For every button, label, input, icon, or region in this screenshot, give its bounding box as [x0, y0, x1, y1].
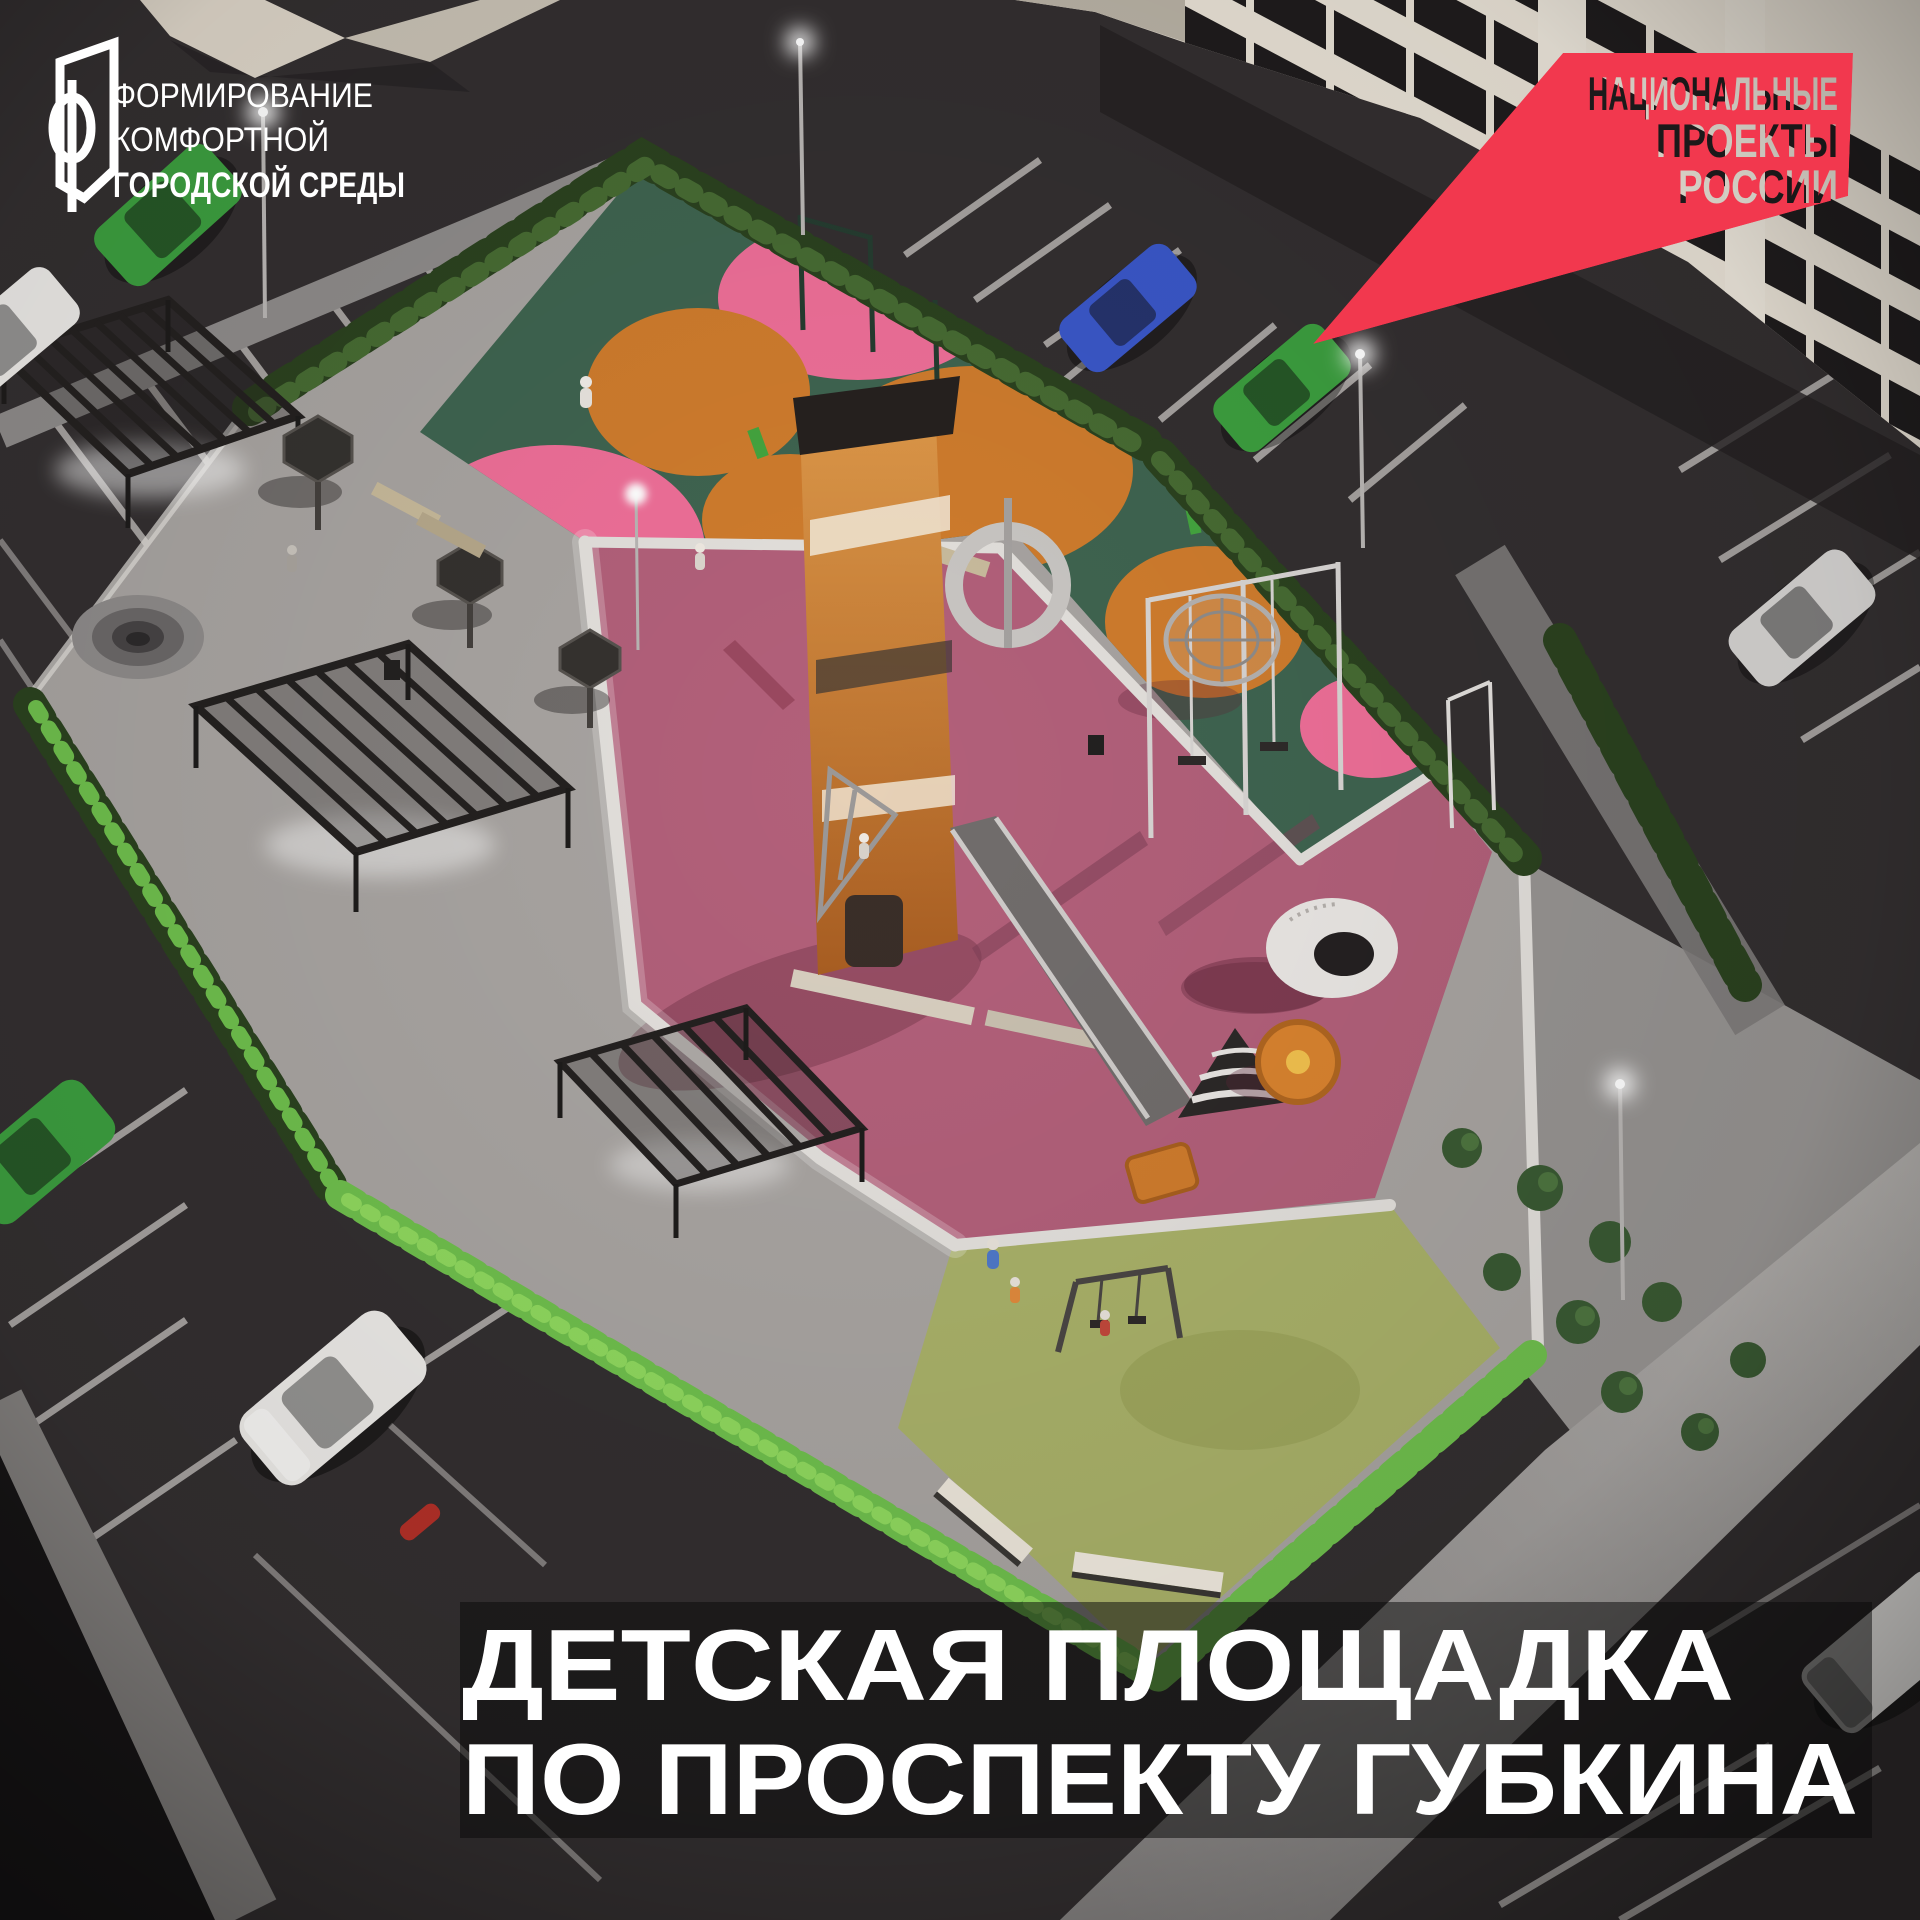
playground-render: НАЦИОНАЛЬНЫЕ ПРОЕКТЫ РОССИИ	[0, 0, 1920, 1920]
title-line2: ПО ПРОСПЕКТУ ГУБКИНА	[462, 1724, 1858, 1836]
poster: НАЦИОНАЛЬНЫЕ ПРОЕКТЫ РОССИИ	[0, 0, 1920, 1920]
title-banner: ДЕТСКАЯ ПЛОЩАДКА ПО ПРОСПЕКТУ ГУБКИНА	[460, 1602, 1872, 1838]
fkgs-logo-line1: ФОРМИРОВАНИЕ	[113, 77, 373, 115]
fkgs-logo-line3: ГОРОДСКОЙ СРЕДЫ	[113, 165, 405, 205]
title-line1: ДЕТСКАЯ ПЛОЩАДКА	[462, 1610, 1734, 1722]
fkgs-logo-line2: КОМФОРТНОЙ	[113, 121, 329, 159]
